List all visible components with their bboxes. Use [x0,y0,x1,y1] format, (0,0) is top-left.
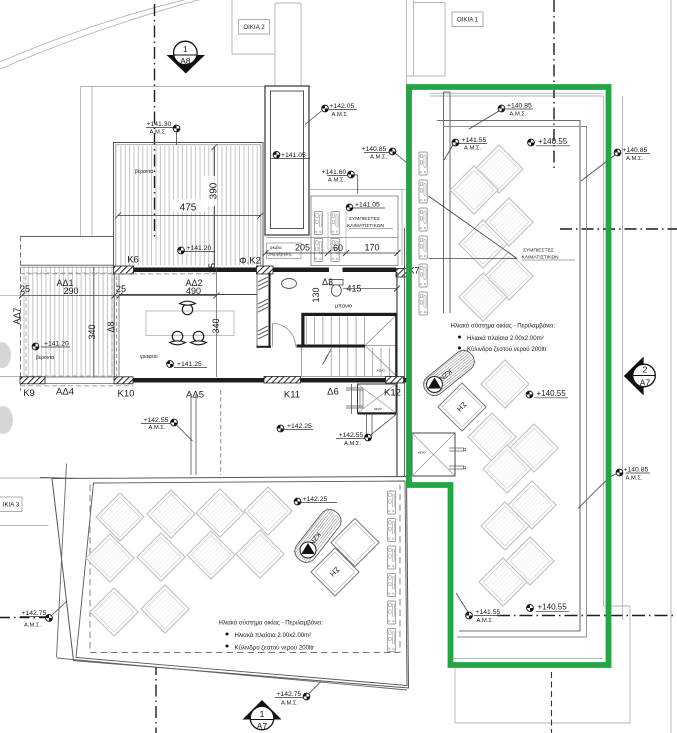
svg-text:340: 340 [211,318,221,333]
svg-text:475: 475 [180,203,197,214]
svg-text:ΑΔ7: ΑΔ7 [12,307,22,324]
svg-text:Α.Μ.Σ.: Α.Μ.Σ. [328,178,345,184]
svg-text:+142.25: +142.25 [287,423,312,430]
svg-text:+140.55: +140.55 [537,389,567,398]
svg-text:+141.20: +141.20 [187,245,212,252]
svg-text:Α.Μ.Σ.: Α.Μ.Σ. [626,156,643,162]
svg-text:Κύλινδρο ζεστού νερού 200ltr: Κύλινδρο ζεστού νερού 200ltr [467,346,547,353]
svg-text:+141.55: +141.55 [462,137,487,144]
svg-text:+140.55: +140.55 [538,137,568,146]
svg-text:Α.Μ.Σ.: Α.Μ.Σ. [370,155,387,161]
svg-text:290: 290 [63,286,78,296]
svg-text:Α7: Α7 [640,378,651,388]
svg-text:Α.Μ.Σ.: Α.Μ.Σ. [510,112,527,118]
svg-text:κενό: κενό [374,407,382,411]
svg-text:+141.55: +141.55 [476,609,501,616]
svg-text:Α.Μ.Σ.: Α.Μ.Σ. [332,112,349,118]
svg-text:25: 25 [20,284,30,294]
svg-text:κενό: κενό [377,369,385,373]
svg-text:+140.85: +140.85 [362,146,387,153]
svg-text:Κ9: Κ9 [23,388,35,399]
svg-text:+140.55: +140.55 [538,603,568,612]
svg-text:μπανιο: μπανιο [335,304,352,310]
svg-text:Α.Μ.Σ.: Α.Μ.Σ. [477,618,494,624]
svg-text:Ηλιακά πλαίσια 2.00x2.00m²: Ηλιακά πλαίσια 2.00x2.00m² [235,632,312,639]
svg-text:γραφειο: γραφειο [140,354,158,360]
svg-text:ΚΛΙΜΑΤΙΣΤΙΚΩΝ: ΚΛΙΜΑΤΙΣΤΙΚΩΝ [347,223,384,229]
svg-text:ΟΙΚΙΑ 2: ΟΙΚΙΑ 2 [243,24,265,31]
svg-text:κενό: κενό [418,451,426,455]
svg-text:Α.Μ.Σ.: Α.Μ.Σ. [281,701,298,707]
svg-text:σκαλα: σκαλα [270,245,282,250]
svg-text:Κ6: Κ6 [127,255,139,266]
svg-text:25: 25 [116,284,126,294]
svg-text:ΟΙΚΙΑ 1: ΟΙΚΙΑ 1 [457,17,479,24]
svg-text:Δ3: Δ3 [322,277,333,287]
svg-text:+141.30: +141.30 [147,121,172,128]
svg-text:ΑΔ5: ΑΔ5 [186,390,204,401]
svg-text:Α.Μ.Σ.: Α.Μ.Σ. [464,146,481,152]
svg-text:Α.Μ.Σ.: Α.Μ.Σ. [344,441,361,447]
svg-text:+142.55: +142.55 [339,432,364,439]
svg-text:Κύλινδρο ζεστού νερού 200ltr: Κύλινδρο ζεστού νερού 200ltr [235,645,315,652]
svg-text:+142.55: +142.55 [144,417,169,424]
svg-text:340: 340 [87,324,97,339]
svg-text:αναρρίχησης: αναρρίχησης [268,252,292,257]
svg-text:205: 205 [295,243,310,253]
svg-text:Α.Μ.Σ.: Α.Μ.Σ. [626,476,643,482]
svg-text:1: 1 [183,44,188,54]
svg-text:Ηλιακά πλαίσια 2.00x2.00m²: Ηλιακά πλαίσια 2.00x2.00m² [467,335,544,342]
svg-text:390: 390 [209,182,220,199]
svg-text:+141.05: +141.05 [281,152,306,159]
svg-text:Ηλιακό σύστημα οικίας - Περιλα: Ηλιακό σύστημα οικίας - Περιλαμβάνει: [451,323,556,330]
svg-text:1: 1 [260,709,265,719]
svg-text:Α8: Α8 [180,56,191,66]
svg-text:Α7: Α7 [257,721,268,731]
svg-text:Φ.Κ2: Φ.Κ2 [239,256,261,267]
svg-text:Δ6: Δ6 [327,387,339,398]
svg-text:170: 170 [364,243,379,253]
svg-text:Α.Μ.Σ.: Α.Μ.Σ. [150,130,167,136]
svg-text:ΑΔ4: ΑΔ4 [56,387,74,398]
svg-text:Κ12: Κ12 [384,388,401,399]
svg-text:+142.75: +142.75 [22,610,47,617]
svg-text:+141.20: +141.20 [44,341,69,348]
svg-text:βεραντα: βεραντα [36,355,54,361]
svg-text:60: 60 [333,243,343,253]
svg-text:+142.05: +142.05 [330,103,355,110]
svg-text:+140.85: +140.85 [624,467,649,474]
svg-text:+141.25: +141.25 [177,361,202,368]
svg-text:Α.Μ.Σ.: Α.Μ.Σ. [149,425,166,431]
svg-text:+141.60: +141.60 [322,169,347,176]
svg-text:+140.85: +140.85 [623,147,648,154]
svg-text:2: 2 [643,365,648,375]
svg-text:+140.85: +140.85 [507,103,532,110]
svg-text:Ηλιακό σύστημα οικίας - Περιλα: Ηλιακό σύστημα οικίας - Περιλαμβάνει: [219,620,324,627]
svg-text:25: 25 [207,263,217,273]
svg-text:130: 130 [311,287,321,302]
svg-text:ΣΥΜΠΙΕΣΤΕΣ: ΣΥΜΠΙΕΣΤΕΣ [523,248,554,254]
svg-text:βεραντα: βεραντα [135,169,153,175]
svg-text:+141.05: +141.05 [355,202,380,209]
svg-text:Κ10: Κ10 [118,389,135,400]
svg-text:Α.Μ.Σ.: Α.Μ.Σ. [24,623,41,629]
svg-text:Κ11: Κ11 [284,390,300,401]
svg-text:ΙΚΙΑ 3: ΙΚΙΑ 3 [3,502,20,509]
svg-text:ΚΛΙΜΑΤΙΣΤΙΚΩΝ: ΚΛΙΜΑΤΙΣΤΙΚΩΝ [522,255,559,261]
svg-text:+142.75: +142.75 [277,691,302,698]
svg-text:ΣΥΜΠΙΕΣΤΕΣ: ΣΥΜΠΙΕΣΤΕΣ [349,216,380,222]
svg-text:+142.25: +142.25 [303,496,328,503]
